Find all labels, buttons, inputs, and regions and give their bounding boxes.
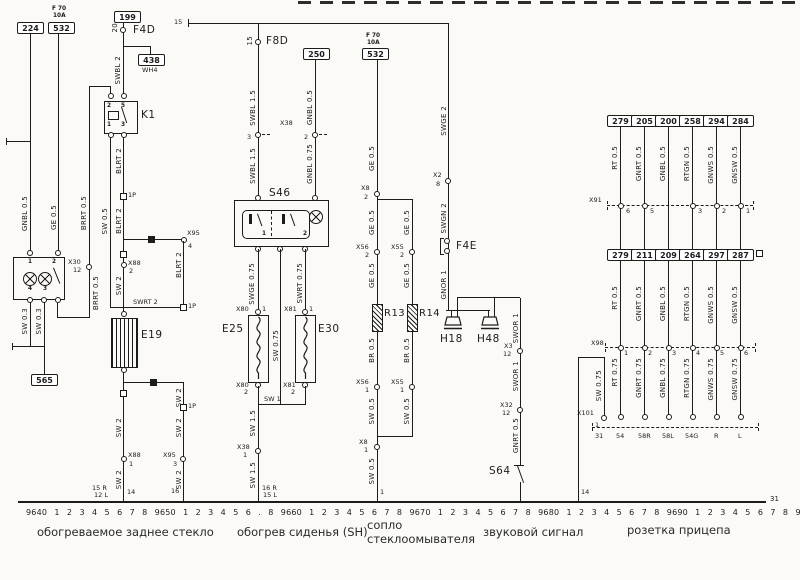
component-box: 258 bbox=[679, 115, 706, 127]
connector-label: X95 bbox=[163, 452, 176, 459]
component-box: 294 bbox=[703, 115, 730, 127]
fuse-f4e-label: F4E bbox=[456, 241, 477, 252]
connector-pin bbox=[445, 178, 451, 184]
connector-pin-number: 1 bbox=[746, 208, 750, 215]
heated-window-element bbox=[111, 318, 138, 368]
component-box: 279 bbox=[607, 249, 634, 261]
wire-label: SW 0.5 bbox=[101, 208, 109, 235]
connector-pin bbox=[601, 415, 607, 421]
wire-label: SWOR 1 bbox=[512, 313, 520, 343]
socket-pin bbox=[690, 414, 696, 420]
wire bbox=[30, 302, 31, 346]
wire-label: SW 0.5 bbox=[368, 398, 376, 425]
wire-label: GE 0.5 bbox=[403, 263, 411, 288]
connector-label: 1P bbox=[128, 192, 136, 199]
connector-pin-number: 2 bbox=[304, 134, 308, 141]
wire-label: SW 0.75 bbox=[595, 370, 603, 401]
wire bbox=[644, 127, 645, 418]
wire bbox=[44, 302, 45, 346]
fuse-f4d-label: F4D bbox=[133, 25, 155, 36]
component-box: 205 bbox=[631, 115, 658, 127]
connector-pin-number: 8 bbox=[436, 181, 440, 188]
wire-label: SW 1.5 bbox=[249, 410, 257, 437]
wire bbox=[89, 86, 90, 266]
inline-connector bbox=[120, 251, 127, 258]
socket-pin bbox=[738, 414, 744, 420]
inline-connector bbox=[756, 250, 763, 257]
section-caption-seat-heating: обогрев сиденья (SH) bbox=[237, 526, 368, 539]
wire-label: RTGN 0.5 bbox=[683, 146, 691, 181]
wire-label: SW 2 bbox=[115, 418, 123, 437]
switch-contact-symbol bbox=[517, 466, 524, 483]
wire-label: SW 2 bbox=[175, 388, 183, 407]
wire bbox=[57, 303, 58, 317]
wire bbox=[183, 382, 184, 502]
wire-label: RTGN 0.5 bbox=[683, 286, 691, 321]
tag-wh4: WH4 bbox=[142, 67, 157, 74]
section-caption-rear-window: обогреваемое заднее стекло bbox=[37, 526, 214, 539]
wire-label: SWBL 2 bbox=[114, 56, 122, 85]
wire-label: GE 0.5 bbox=[50, 205, 58, 230]
connector-pin bbox=[374, 444, 380, 450]
connector-label: 1P bbox=[188, 403, 196, 410]
connector-pin-number: 3 bbox=[698, 208, 702, 215]
horn-h18-label: H18 bbox=[440, 334, 463, 345]
pin-number: 1 bbox=[107, 122, 111, 128]
wire bbox=[12, 346, 45, 347]
connector-pin-number: 12 bbox=[503, 351, 511, 358]
connector-pin bbox=[374, 384, 380, 390]
inline-connector bbox=[120, 390, 127, 397]
wire bbox=[692, 127, 693, 418]
connector-label: X8 bbox=[359, 439, 368, 446]
connector-pin bbox=[312, 132, 318, 138]
wire bbox=[377, 199, 413, 200]
wire-label: GE 0.5 bbox=[368, 210, 376, 235]
connector-pin bbox=[642, 203, 648, 209]
connector-pin bbox=[121, 262, 127, 268]
wire-label: SW 0.3 bbox=[21, 308, 29, 335]
wire-label: GNRT 0.75 bbox=[635, 358, 643, 398]
element-r14-label: R14 bbox=[419, 308, 440, 319]
wire-label: RT 0.5 bbox=[611, 286, 619, 310]
connector-pin-number: 1 bbox=[624, 350, 628, 357]
connector-label: X101 bbox=[577, 410, 594, 417]
splice bbox=[148, 236, 155, 243]
ground-location-label: 12 L bbox=[94, 492, 108, 499]
connector-row-tick bbox=[755, 343, 756, 352]
connector-pin bbox=[690, 203, 696, 209]
indicator-lamp-icon bbox=[23, 272, 37, 286]
terminal-label: 20 bbox=[111, 23, 119, 33]
connector-label: X30 bbox=[68, 259, 81, 266]
wire-label: SW 1 bbox=[264, 396, 281, 403]
wire bbox=[30, 33, 31, 251]
component-box: 287 bbox=[727, 249, 754, 261]
wire bbox=[6, 138, 7, 145]
connector-pin-number: 3 bbox=[247, 134, 251, 141]
wire bbox=[377, 330, 378, 502]
wire bbox=[123, 137, 124, 314]
wire-label: GNBL 0.5 bbox=[659, 146, 667, 181]
wire-label: SWBL 1.5 bbox=[249, 90, 257, 126]
fuse-rating: F 70 bbox=[366, 33, 380, 39]
component-box: 209 bbox=[655, 249, 682, 261]
wire-label: BRRT 0.5 bbox=[92, 276, 100, 310]
wire-label: BR 0.5 bbox=[368, 338, 376, 363]
wire-label: BR 0.5 bbox=[403, 338, 411, 363]
element-e30-label: E30 bbox=[318, 324, 340, 335]
pin-number: 2 bbox=[52, 259, 56, 265]
connector-pin-number: 1 bbox=[243, 452, 247, 459]
pin-number: 1 bbox=[262, 231, 266, 237]
wire-label: SW 2 bbox=[175, 418, 183, 437]
connector-label: X55 bbox=[391, 379, 404, 386]
connector-pin bbox=[374, 249, 380, 255]
wire-label: BLRT 2 bbox=[115, 208, 123, 234]
connector-row-tick bbox=[607, 201, 608, 210]
wire bbox=[57, 317, 90, 318]
wire bbox=[280, 249, 281, 405]
section-caption-washer-nozzle-line1: сопло bbox=[367, 519, 402, 532]
connector-pin-number: 6 bbox=[626, 208, 630, 215]
wire bbox=[12, 343, 13, 350]
wire-label: GE 0.5 bbox=[403, 210, 411, 235]
connector-label: 1P bbox=[188, 303, 196, 310]
component-box: 200 bbox=[655, 115, 682, 127]
wire bbox=[446, 310, 490, 311]
wire bbox=[44, 347, 45, 375]
wire-label: GNWS 0.75 bbox=[707, 358, 715, 401]
connector-pin-number: 12 bbox=[502, 410, 510, 417]
fuse-rating: 10A bbox=[367, 40, 380, 46]
wire bbox=[604, 357, 605, 417]
connector-label: X95 bbox=[187, 230, 200, 237]
indicator-lamp-icon bbox=[309, 210, 323, 224]
ground-track-label: 14 bbox=[127, 489, 135, 496]
connector-row-x91 bbox=[607, 205, 753, 206]
fuse-f8d-label: F8D bbox=[266, 36, 288, 47]
connector-label: X8 bbox=[361, 185, 370, 192]
connector-pin-number: 2 bbox=[365, 252, 369, 259]
bus-15-line bbox=[188, 23, 449, 24]
ground-bus-label: 31 bbox=[770, 496, 779, 503]
connector-label: X98 bbox=[591, 340, 604, 347]
wire-label: SWOR 1 bbox=[512, 361, 520, 391]
seat-heater-element bbox=[295, 315, 316, 383]
connector-pin-number: 5 bbox=[720, 350, 724, 357]
wire bbox=[578, 357, 579, 502]
pin bbox=[121, 311, 127, 317]
connector-pin-number: 1 bbox=[400, 387, 404, 394]
connector-label: X80 bbox=[236, 306, 249, 313]
wire-label: GNSW 0.75 bbox=[731, 358, 739, 401]
socket-terminal-label: 58L bbox=[662, 433, 674, 440]
connector-pin-number: 12 bbox=[73, 267, 81, 274]
wire bbox=[305, 249, 306, 309]
wire bbox=[258, 386, 259, 405]
wire bbox=[315, 59, 316, 196]
pin-number: 3 bbox=[43, 286, 47, 292]
socket-pin bbox=[618, 414, 624, 420]
wire bbox=[6, 141, 30, 142]
connector-label: X38 bbox=[237, 444, 250, 451]
wire-label: GNWS 0.5 bbox=[707, 286, 715, 324]
horn-symbol bbox=[444, 316, 462, 330]
switch-s46-label: S46 bbox=[269, 188, 291, 199]
wire-label: GNBL 0.5 bbox=[21, 196, 29, 231]
wire bbox=[377, 436, 413, 437]
component-box-532: 532 bbox=[362, 48, 389, 60]
wire-label: SW 0.5 bbox=[403, 398, 411, 425]
terminal-pin bbox=[120, 27, 126, 33]
component-box-532: 532 bbox=[48, 22, 75, 34]
terminal-label: 15 bbox=[246, 36, 254, 46]
connector-pin bbox=[517, 407, 523, 413]
ground-track-label: 16 bbox=[171, 488, 179, 495]
component-box: 284 bbox=[727, 115, 754, 127]
wire-label: BLRT 2 bbox=[115, 148, 123, 174]
horn-h48-label: H48 bbox=[477, 334, 500, 345]
pin-number: 3 bbox=[121, 122, 125, 128]
wire bbox=[716, 127, 717, 418]
connector-label: X3 bbox=[504, 343, 513, 350]
connector-pin-number: 1 bbox=[309, 306, 313, 313]
connector-label: X56 bbox=[356, 379, 369, 386]
relay-k1-label: K1 bbox=[141, 110, 156, 121]
wire bbox=[494, 298, 495, 317]
connector-pin bbox=[738, 203, 744, 209]
component-box: 264 bbox=[679, 249, 706, 261]
switch-inner-frame bbox=[242, 210, 310, 239]
wire bbox=[457, 298, 458, 317]
socket-pin bbox=[642, 414, 648, 420]
socket-terminal-label: 58R bbox=[638, 433, 651, 440]
wire-label: RTGN 0.75 bbox=[683, 358, 691, 398]
contact-bar bbox=[282, 214, 285, 224]
wire-label: SW 1.5 bbox=[249, 462, 257, 489]
seat-heater-element bbox=[248, 315, 269, 383]
wire-label: SWGN 2 bbox=[440, 203, 448, 234]
wire-label: SW 0.5 bbox=[368, 458, 376, 485]
fuse-rating: 10A bbox=[53, 13, 66, 19]
wire bbox=[124, 46, 150, 47]
cropped-text-artifact bbox=[298, 1, 796, 4]
component-box: 279 bbox=[607, 115, 634, 127]
connector-pin-number: 4 bbox=[696, 350, 700, 357]
terminal-pin bbox=[255, 39, 261, 45]
inline-connector bbox=[120, 193, 127, 200]
indicator-lamp-icon bbox=[38, 272, 52, 286]
wire-label: SWRT 0.75 bbox=[296, 263, 304, 304]
wire-label: GNSW 0.5 bbox=[731, 146, 739, 184]
connector-label: X2 bbox=[433, 172, 442, 179]
component-box-199: 199 bbox=[114, 11, 141, 23]
connector-bracket bbox=[262, 134, 270, 135]
component-box-565: 565 bbox=[31, 374, 58, 386]
pin-number: 2 bbox=[303, 231, 307, 237]
wire-label: GNBL 0.75 bbox=[659, 358, 667, 398]
pin bbox=[27, 250, 33, 256]
wire bbox=[258, 404, 306, 405]
pin bbox=[312, 195, 318, 201]
wire-label: GNBL 0.5 bbox=[306, 90, 314, 125]
wire bbox=[89, 269, 90, 318]
wire-label: GE 0.5 bbox=[368, 146, 376, 171]
pin bbox=[255, 195, 261, 201]
ground-track-label: 14 bbox=[581, 489, 589, 496]
wire-label: SWRT 2 bbox=[133, 299, 158, 306]
nozzle-heater-r14 bbox=[407, 304, 418, 332]
inline-connector bbox=[180, 304, 187, 311]
wire bbox=[305, 386, 306, 405]
wire-label: RT 0.75 bbox=[611, 358, 619, 387]
fuse-bracket bbox=[440, 238, 441, 255]
wire-label: GNOR 1 bbox=[440, 270, 448, 300]
connector-pin bbox=[409, 384, 415, 390]
fuse-rating: F 70 bbox=[52, 6, 66, 12]
wire-label: GNRT 0.5 bbox=[512, 418, 520, 453]
connector-label: X38 bbox=[280, 120, 293, 127]
pin bbox=[55, 250, 61, 256]
wire-label: GNBL 0.5 bbox=[659, 286, 667, 321]
bus-15-label: 15 bbox=[174, 19, 182, 26]
connector-row-x98 bbox=[605, 347, 755, 348]
component-box-250: 250 bbox=[303, 48, 330, 60]
wire bbox=[110, 307, 181, 308]
wire bbox=[448, 23, 449, 311]
fuse-bracket bbox=[440, 254, 444, 255]
connector-pin bbox=[409, 249, 415, 255]
connector-label: X88 bbox=[128, 260, 141, 267]
contact-bar bbox=[249, 214, 252, 224]
heater-squiggle-icon bbox=[249, 316, 268, 380]
connector-row-tick bbox=[605, 343, 606, 352]
connector-pin-number: 2 bbox=[244, 389, 248, 396]
connector-label: X81 bbox=[284, 306, 297, 313]
ground-track-label: 1 bbox=[380, 489, 384, 496]
section-caption-washer-nozzle-line2: стеклоомывателя bbox=[367, 533, 475, 546]
connector-pin-number: 2 bbox=[648, 350, 652, 357]
connector-pin-number: 6 bbox=[744, 350, 748, 357]
connector-label: X91 bbox=[589, 197, 602, 204]
socket-terminal-label: L bbox=[738, 433, 742, 440]
connector-pin bbox=[618, 203, 624, 209]
connector-row-tick bbox=[758, 423, 759, 431]
wire-label: SWBL 1.5 bbox=[249, 148, 257, 184]
connector-pin-number: 2 bbox=[400, 252, 404, 259]
socket-pin bbox=[714, 414, 720, 420]
socket-terminal-label: R bbox=[714, 433, 719, 440]
connector-pin-number: 1 bbox=[365, 387, 369, 394]
wire-label: GNWS 0.5 bbox=[707, 146, 715, 184]
ground-bus-line bbox=[18, 501, 766, 503]
connector-pin-number: 3 bbox=[672, 350, 676, 357]
connector-pin bbox=[714, 203, 720, 209]
fuse-pin bbox=[444, 248, 450, 254]
component-box-438: 438 bbox=[138, 54, 165, 66]
pin-number: 1 bbox=[28, 259, 32, 265]
connector-label: X32 bbox=[500, 402, 513, 409]
connector-pin bbox=[517, 348, 523, 354]
connector-pin bbox=[255, 448, 261, 454]
wire bbox=[620, 127, 621, 418]
connector-pin bbox=[180, 456, 186, 462]
horn-symbol bbox=[481, 316, 499, 330]
trailer-socket-row bbox=[592, 427, 758, 428]
component-box: 211 bbox=[631, 249, 658, 261]
socket-terminal-label: 54 bbox=[616, 433, 624, 440]
section-caption-horn: звуковой сигнал bbox=[483, 526, 583, 539]
wire-label: GNRT 0.5 bbox=[635, 146, 643, 181]
connector-pin-number: 2 bbox=[722, 208, 726, 215]
relay-pin bbox=[121, 93, 127, 99]
connector-pin bbox=[255, 132, 261, 138]
wiring-diagram-page: 15 224 F 70 10A 532 GNBL 0.5 GE 0.5 199 … bbox=[0, 0, 800, 580]
pin bbox=[55, 297, 61, 303]
connector-pin-number: 3 bbox=[173, 461, 177, 468]
connector-pin-number: 2 bbox=[291, 389, 295, 396]
component-box: 297 bbox=[703, 249, 730, 261]
connector-label: X55 bbox=[391, 244, 404, 251]
heater-squiggle-icon bbox=[296, 316, 315, 380]
wire bbox=[258, 23, 259, 196]
connector-label: X56 bbox=[356, 244, 369, 251]
connector-bracket bbox=[319, 134, 327, 135]
connector-pin-number: 1 bbox=[364, 447, 368, 454]
connector-row-tick bbox=[592, 423, 593, 431]
wire-label: GNBL 0.75 bbox=[306, 144, 314, 184]
wire bbox=[89, 86, 111, 87]
wire bbox=[668, 127, 669, 418]
switch-bar bbox=[514, 465, 524, 466]
connector-pin-number: 4 bbox=[188, 243, 192, 250]
wire bbox=[258, 249, 259, 309]
wire bbox=[377, 59, 378, 192]
connector-row-tick bbox=[753, 201, 754, 210]
wire-label: GNSW 0.5 bbox=[731, 286, 739, 324]
element-e25-label: E25 bbox=[222, 324, 244, 335]
wire bbox=[520, 482, 521, 502]
wire-label: SWGE 0.75 bbox=[248, 263, 256, 305]
wire-label: BRRT 0.5 bbox=[80, 196, 88, 230]
wire-label: SW 0.3 bbox=[35, 308, 43, 335]
wire bbox=[457, 297, 520, 298]
wire-label: SW 2 bbox=[115, 276, 123, 295]
wire-label: RT 0.5 bbox=[611, 146, 619, 170]
socket-pin bbox=[666, 414, 672, 420]
connector-label: X88 bbox=[128, 452, 141, 459]
socket-terminal-label: 31 bbox=[595, 433, 603, 440]
wire bbox=[740, 127, 741, 418]
pin-number: 2 bbox=[107, 103, 111, 109]
wire-label: SW 2 bbox=[115, 470, 123, 489]
relay-coil-symbol bbox=[108, 111, 119, 120]
section-caption-trailer-socket: розетка прицепа bbox=[627, 524, 731, 537]
wire-label: SW 0.75 bbox=[272, 330, 280, 361]
connector-pin bbox=[121, 456, 127, 462]
fuse-pin bbox=[444, 238, 450, 244]
socket-terminal-label: 54G bbox=[685, 433, 698, 440]
connector-pin-number: 1 bbox=[129, 461, 133, 468]
connector-pin-number: 1 bbox=[262, 306, 266, 313]
wire-label: GE 0.5 bbox=[368, 263, 376, 288]
nozzle-heater-r13 bbox=[372, 304, 383, 332]
wire-label: GNRT 0.5 bbox=[635, 286, 643, 321]
switch-s64-label: S64 bbox=[489, 466, 511, 477]
wire bbox=[58, 33, 59, 251]
wire-label: SWGE 2 bbox=[440, 106, 448, 136]
